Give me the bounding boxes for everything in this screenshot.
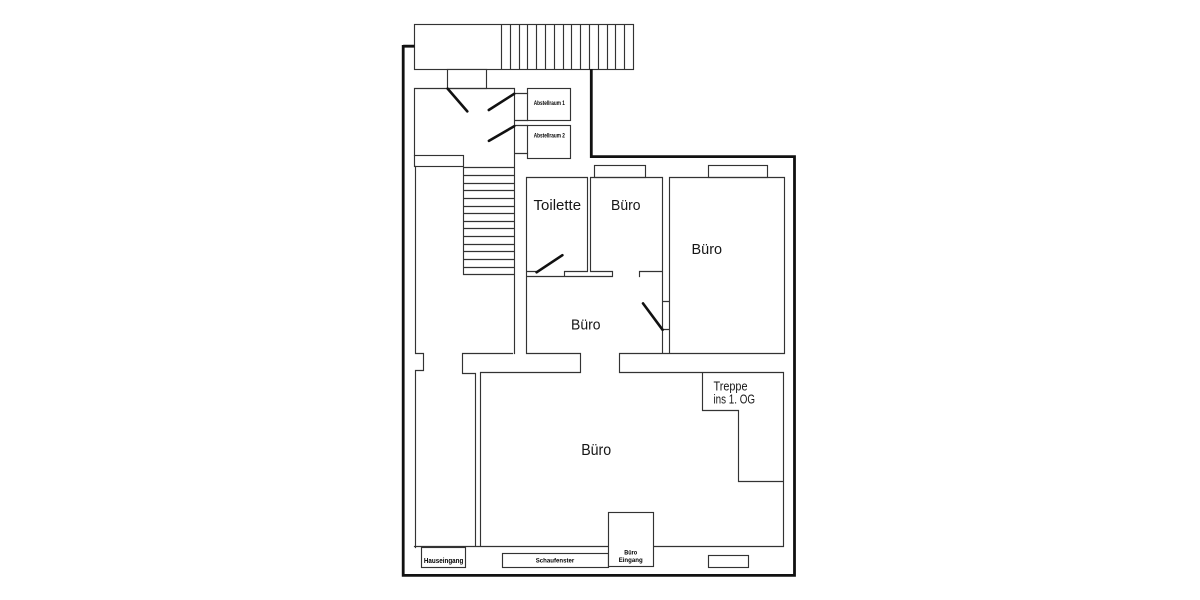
svg-text:Büro: Büro bbox=[692, 241, 723, 258]
svg-text:ins 1. OG: ins 1. OG bbox=[714, 391, 756, 406]
svg-text:Toilette: Toilette bbox=[534, 197, 582, 214]
svg-text:Schaufenster: Schaufenster bbox=[536, 558, 575, 565]
svg-text:Hauseingang: Hauseingang bbox=[424, 558, 464, 565]
svg-text:Eingang: Eingang bbox=[619, 557, 643, 564]
svg-text:Abstellraum 2: Abstellraum 2 bbox=[534, 132, 565, 139]
svg-text:Büro: Büro bbox=[571, 317, 601, 334]
svg-text:Abstellraum 1: Abstellraum 1 bbox=[534, 100, 565, 107]
svg-text:Büro: Büro bbox=[581, 442, 611, 459]
svg-text:Büro: Büro bbox=[611, 197, 641, 214]
svg-text:Büro: Büro bbox=[624, 549, 637, 556]
